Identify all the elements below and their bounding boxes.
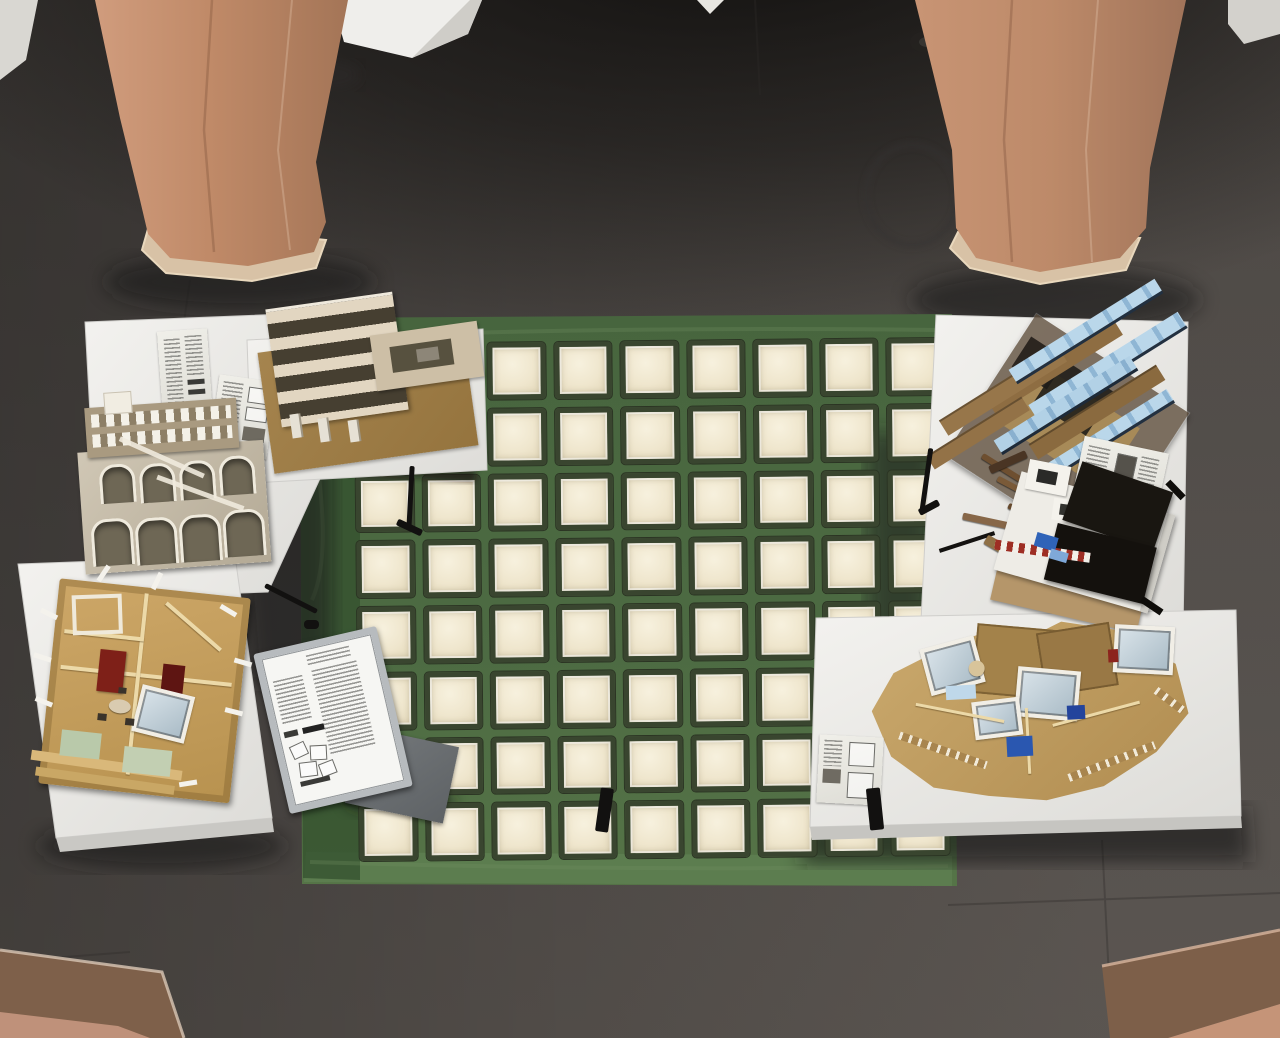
model-furniture bbox=[118, 687, 127, 694]
column-top-right bbox=[915, 0, 1186, 272]
placard-logo bbox=[284, 729, 299, 738]
placard-text-left bbox=[273, 675, 312, 725]
exhibition-overview-photo bbox=[0, 0, 1280, 1038]
model-furniture bbox=[125, 718, 135, 726]
pedestal-top-left-corner bbox=[0, 0, 38, 80]
info-sheet-image bbox=[187, 379, 204, 385]
placard-plan-diagram bbox=[310, 745, 328, 761]
placard-text-right bbox=[311, 660, 375, 754]
model-blue-detail bbox=[1067, 705, 1086, 720]
info-sheet-text bbox=[823, 740, 842, 767]
model-green-mat bbox=[122, 746, 172, 777]
model-blue-detail bbox=[946, 685, 977, 701]
model-skylight-box bbox=[1113, 624, 1175, 675]
model-arch bbox=[178, 513, 223, 563]
placard-plan-diagram bbox=[299, 761, 319, 778]
model-roof-window bbox=[1036, 469, 1058, 486]
model-arch bbox=[222, 508, 267, 558]
info-sheet-image bbox=[822, 769, 841, 784]
model-window-row bbox=[92, 425, 233, 448]
model-red-detail bbox=[1108, 649, 1119, 663]
model-green-mat bbox=[59, 729, 101, 759]
model-arch bbox=[134, 516, 179, 566]
model-blue-detail bbox=[1006, 736, 1033, 757]
info-sheet-plan bbox=[848, 742, 875, 767]
model-roof-box bbox=[103, 391, 132, 415]
model-v-shaped-interior bbox=[850, 603, 1200, 821]
model-sofa-frame bbox=[72, 594, 123, 636]
model-cutaway-section bbox=[255, 298, 487, 470]
info-sheet-text bbox=[184, 335, 204, 376]
model-open-plan-interior bbox=[26, 567, 265, 824]
model-arch bbox=[90, 517, 135, 567]
placard-plan-diagram bbox=[289, 741, 309, 760]
trestle-foot bbox=[304, 620, 319, 629]
model-arch bbox=[218, 454, 257, 495]
placard-logo bbox=[302, 723, 325, 734]
model-arched-facade bbox=[74, 390, 278, 587]
model-arch bbox=[98, 463, 137, 504]
column-top-left bbox=[95, 0, 348, 266]
model-furniture bbox=[97, 713, 107, 721]
pedestal-top-2 bbox=[697, 0, 724, 14]
pedestal-top-right-corner bbox=[1228, 0, 1280, 44]
